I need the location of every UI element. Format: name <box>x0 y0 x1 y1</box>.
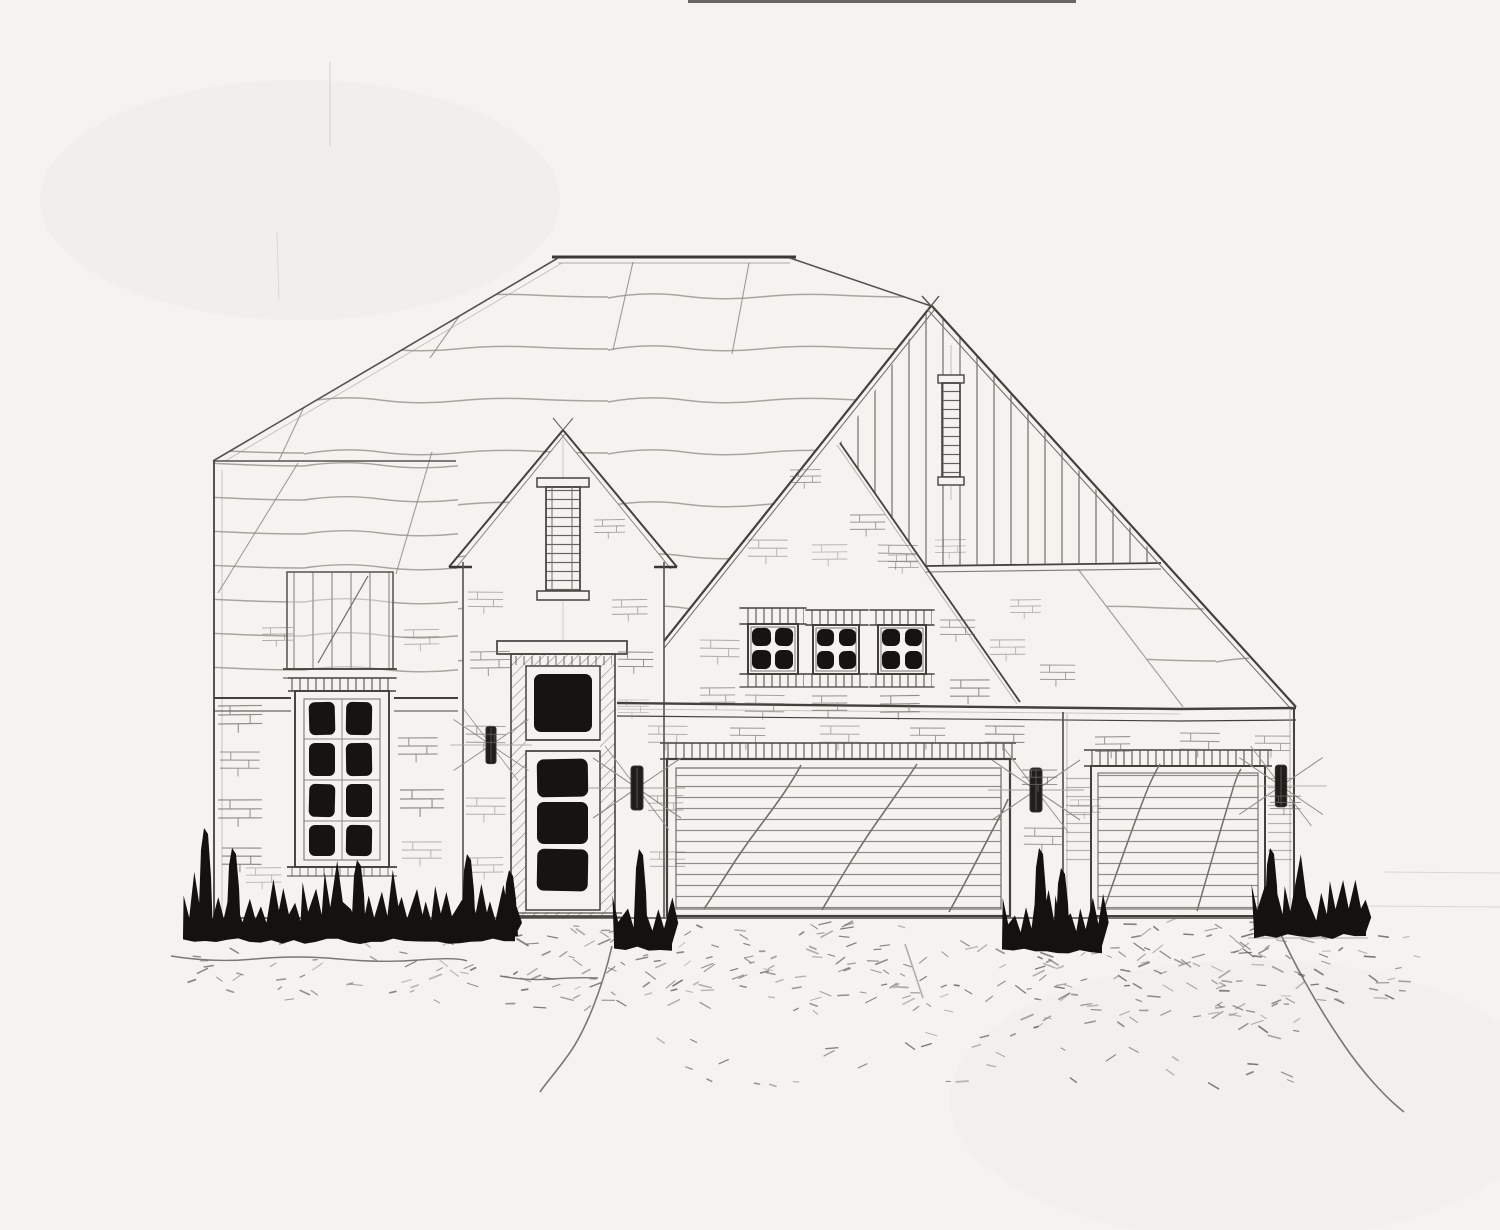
left-casement-window <box>287 678 397 876</box>
door-cap <box>497 641 627 654</box>
transom-lite <box>534 674 592 732</box>
soldier-course <box>1086 750 1270 766</box>
sketch-page: House Front Elevation - Pencil Sketch Ha… <box>0 0 1500 1230</box>
gable-window-1 <box>740 608 806 687</box>
bay-panel <box>283 572 397 678</box>
scan-edge-artifact <box>688 0 1076 3</box>
gable-window-3 <box>870 610 934 687</box>
door-lite <box>537 759 589 798</box>
single-garage-door <box>1084 750 1272 916</box>
door-slats <box>676 768 1001 909</box>
door-lite <box>537 849 589 892</box>
gable-windows <box>740 608 934 687</box>
elevation-sketch <box>0 0 1500 1230</box>
two-car-garage-door <box>660 743 1016 916</box>
door-lite <box>537 802 588 844</box>
gable-window-2 <box>806 610 868 687</box>
door-slats <box>1098 773 1258 909</box>
